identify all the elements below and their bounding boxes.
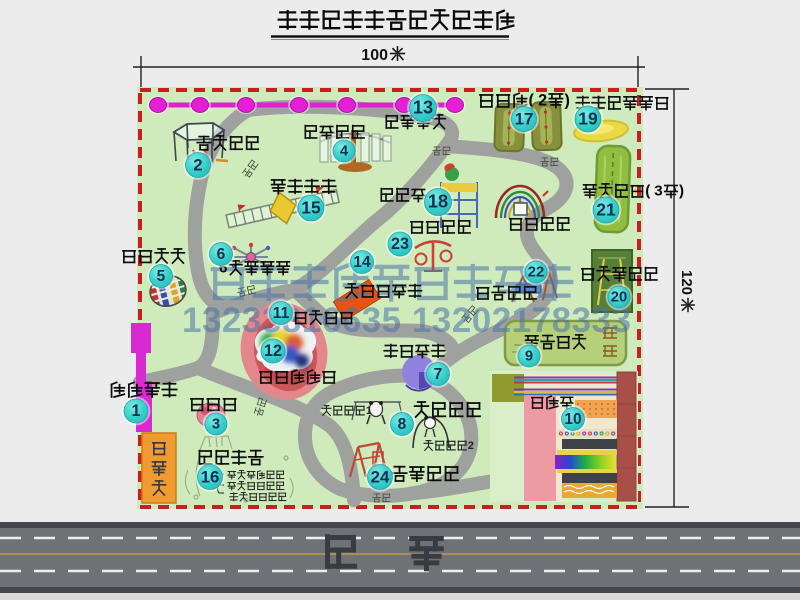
svg-text:): ) xyxy=(679,183,684,200)
svg-text:120: 120 xyxy=(678,270,695,295)
svg-text:11: 11 xyxy=(273,305,290,322)
svg-text:2: 2 xyxy=(193,155,202,174)
svg-text:8: 8 xyxy=(398,416,407,433)
svg-text:14: 14 xyxy=(353,254,371,271)
svg-text:17: 17 xyxy=(515,109,534,128)
svg-text:15: 15 xyxy=(301,197,321,217)
svg-text:22: 22 xyxy=(528,265,545,281)
svg-text:3: 3 xyxy=(212,417,220,433)
svg-text:13233816635 13202178333: 13233816635 13202178333 xyxy=(182,301,631,340)
svg-text:23: 23 xyxy=(391,235,409,253)
svg-text:7: 7 xyxy=(434,366,443,383)
svg-text:2: 2 xyxy=(538,92,547,110)
svg-text:4: 4 xyxy=(340,144,349,160)
svg-text:24: 24 xyxy=(371,467,390,486)
svg-text:2: 2 xyxy=(468,440,474,452)
svg-text:1: 1 xyxy=(366,405,372,417)
svg-text:5: 5 xyxy=(157,268,166,285)
svg-text:1: 1 xyxy=(131,402,140,420)
svg-text:13: 13 xyxy=(413,98,433,118)
svg-text:20: 20 xyxy=(611,290,628,306)
svg-text:18: 18 xyxy=(428,192,448,212)
svg-text:16: 16 xyxy=(201,467,220,486)
svg-text:9: 9 xyxy=(525,349,533,365)
svg-text:21: 21 xyxy=(596,199,616,219)
svg-text:19: 19 xyxy=(578,108,598,128)
svg-text:100: 100 xyxy=(361,47,388,64)
svg-text:): ) xyxy=(565,92,570,110)
svg-text:3: 3 xyxy=(654,183,662,200)
svg-text:6: 6 xyxy=(217,246,226,263)
svg-text:12: 12 xyxy=(264,342,282,360)
svg-text:10: 10 xyxy=(564,411,581,428)
